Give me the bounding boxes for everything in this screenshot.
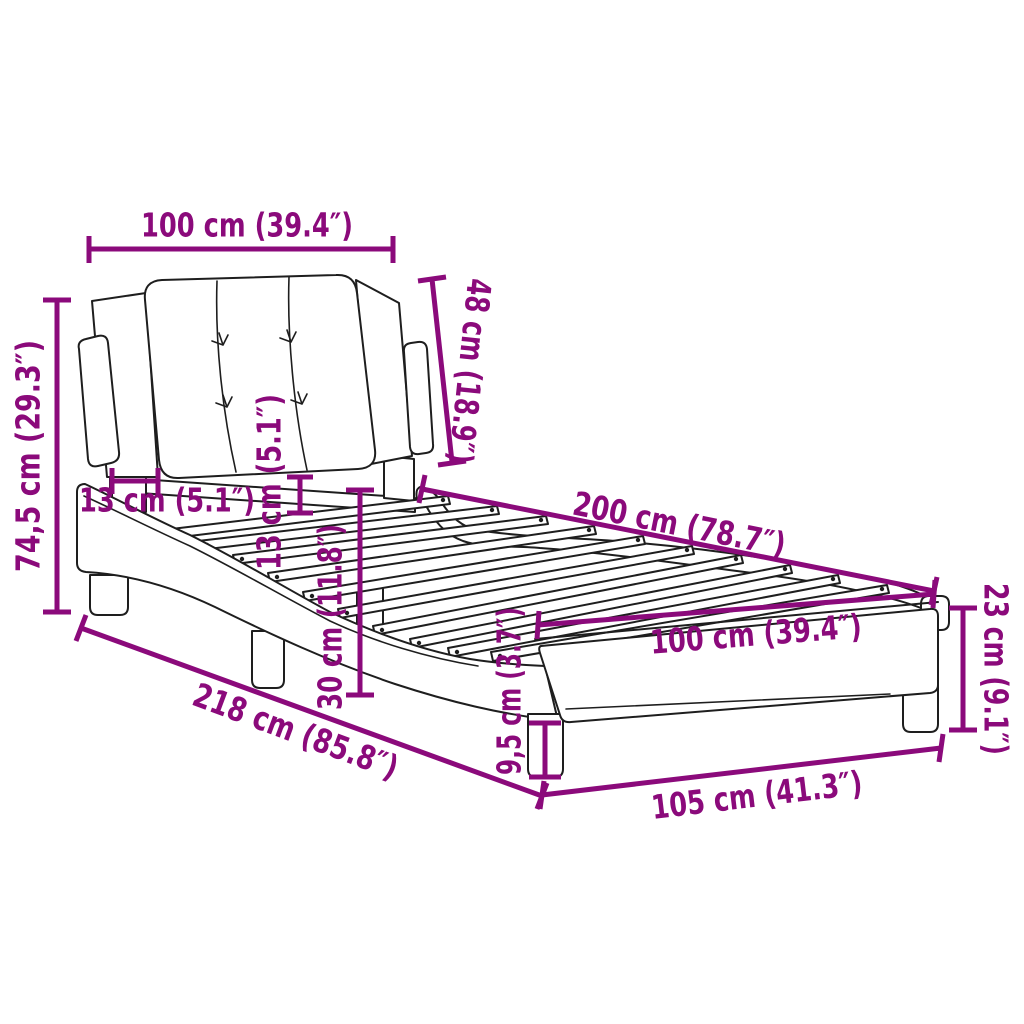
dimension-label: 9,5 cm (3.7″) — [490, 607, 529, 775]
dimension-line — [949, 608, 977, 730]
dimension-label: 100 cm (39.4″) — [141, 206, 353, 245]
dimension-label: 74,5 cm (29.3″) — [9, 340, 48, 572]
dimension-label: 30 cm (11.8″) — [311, 524, 350, 710]
dimension-label: 13 cm (5.1″) — [250, 394, 289, 570]
dimension-diagram: 100 cm (39.4″) 48 cm (18.9″) 74,5 cm (29… — [0, 0, 1024, 1024]
dimension-label: 105 cm (41.3″) — [649, 763, 864, 827]
dimension-label: 23 cm (9.1″) — [977, 583, 1016, 755]
dimension-label: 48 cm (18.9″) — [441, 277, 499, 466]
dimension-headboard-width: 100 cm (39.4″) — [89, 206, 393, 264]
bed-leg-head — [90, 575, 128, 615]
headboard-post-right — [384, 456, 414, 501]
bed-frame-dimension-drawing: 100 cm (39.4″) 48 cm (18.9″) 74,5 cm (29… — [0, 0, 1024, 1024]
dimension-frame-width: 105 cm (41.3″) — [540, 734, 943, 827]
dimension-label: 13 cm (5.1″) — [79, 481, 255, 520]
dimension-total-height: 74,5 cm (29.3″) — [9, 300, 72, 612]
dimension-footend-height: 23 cm (9.1″) — [949, 583, 1016, 755]
bed-leg-middle — [252, 631, 284, 688]
dimension-label: 218 cm (85.8″) — [188, 675, 404, 787]
